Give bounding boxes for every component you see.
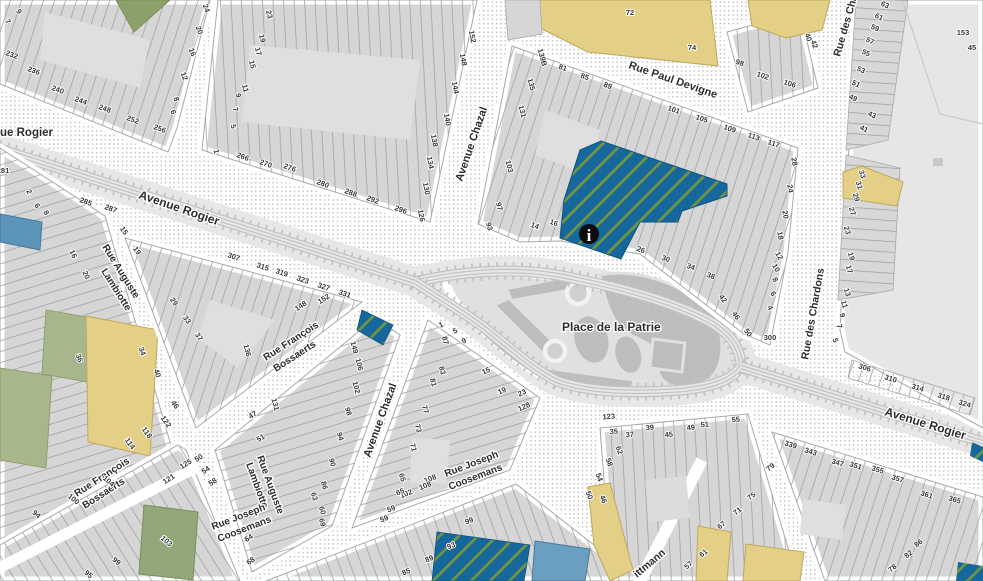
svg-text:55: 55 <box>731 415 740 425</box>
svg-text:123: 123 <box>602 411 615 421</box>
svg-text:Place de la Patrie: Place de la Patrie <box>562 320 661 334</box>
svg-text:72: 72 <box>626 8 634 17</box>
svg-text:39: 39 <box>645 423 654 433</box>
svg-text:18: 18 <box>775 231 785 241</box>
svg-text:74: 74 <box>688 43 697 52</box>
svg-text:35: 35 <box>609 427 618 437</box>
svg-text:281: 281 <box>0 166 9 175</box>
svg-text:28: 28 <box>789 157 799 167</box>
svg-text:45: 45 <box>664 430 673 440</box>
svg-text:37: 37 <box>625 430 634 440</box>
svg-text:i: i <box>587 226 592 245</box>
svg-text:51: 51 <box>700 420 709 430</box>
svg-text:45: 45 <box>968 43 976 52</box>
svg-text:49: 49 <box>686 423 695 433</box>
svg-text:ue Rogier: ue Rogier <box>0 127 54 139</box>
svg-text:20: 20 <box>780 210 790 220</box>
svg-text:300: 300 <box>764 333 777 342</box>
svg-text:153: 153 <box>957 28 970 37</box>
